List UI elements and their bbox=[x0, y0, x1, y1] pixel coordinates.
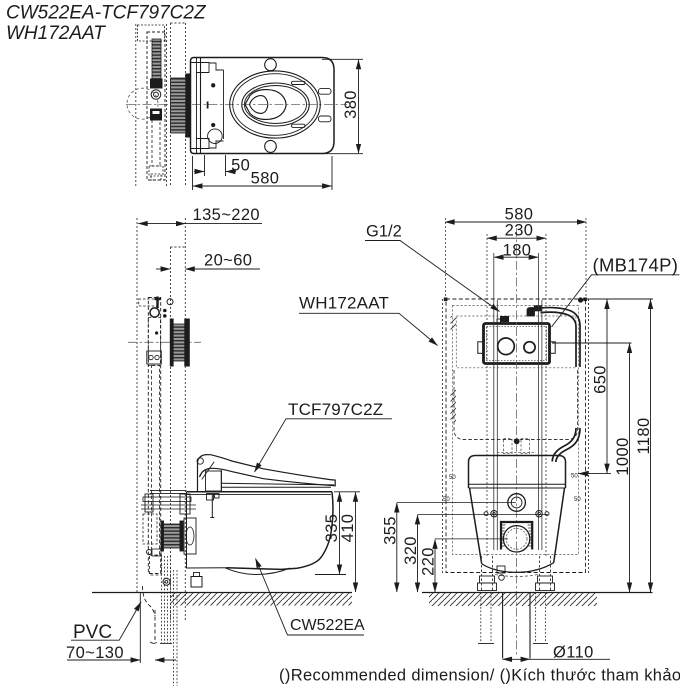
svg-text:WH172AAT: WH172AAT bbox=[299, 294, 389, 313]
svg-text:1000: 1000 bbox=[614, 437, 632, 475]
svg-text:180: 180 bbox=[503, 242, 532, 260]
svg-text:220: 220 bbox=[420, 547, 438, 576]
svg-text:G1/2: G1/2 bbox=[366, 223, 402, 241]
svg-text:Ø110: Ø110 bbox=[553, 644, 594, 662]
svg-text:580: 580 bbox=[251, 170, 280, 188]
svg-text:(MB174P): (MB174P) bbox=[593, 255, 679, 276]
svg-text:TCF797C2Z: TCF797C2Z bbox=[288, 400, 383, 419]
svg-text:230: 230 bbox=[505, 222, 534, 240]
svg-text:()Recommended dimension/ ()Kíc: ()Recommended dimension/ ()Kích thước th… bbox=[279, 667, 680, 685]
svg-text:70~130: 70~130 bbox=[66, 644, 124, 662]
svg-text:20~60: 20~60 bbox=[204, 252, 252, 270]
svg-text:50: 50 bbox=[571, 474, 578, 480]
svg-text:50: 50 bbox=[449, 475, 456, 481]
svg-text:CW522EA: CW522EA bbox=[290, 617, 365, 634]
svg-text:WH172AAT: WH172AAT bbox=[6, 23, 106, 44]
svg-text:135~220: 135~220 bbox=[193, 206, 261, 224]
svg-text:320: 320 bbox=[402, 536, 420, 565]
svg-text:50: 50 bbox=[443, 497, 450, 503]
svg-text:CW522EA-TCF797C2Z: CW522EA-TCF797C2Z bbox=[6, 3, 207, 24]
svg-text:410: 410 bbox=[339, 514, 357, 543]
svg-text:650: 650 bbox=[592, 365, 610, 394]
svg-text:50: 50 bbox=[231, 157, 250, 175]
svg-text:355: 355 bbox=[381, 516, 399, 545]
svg-text:50: 50 bbox=[574, 497, 581, 503]
svg-text:1180: 1180 bbox=[635, 417, 653, 454]
svg-text:380: 380 bbox=[342, 90, 360, 119]
